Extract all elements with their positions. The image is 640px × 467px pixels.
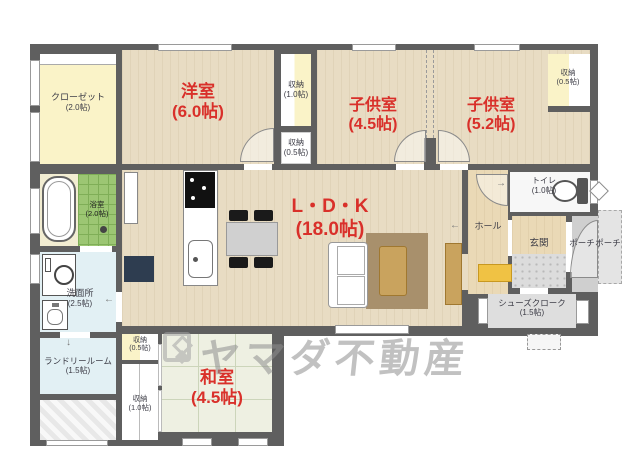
logo-diamond xyxy=(175,350,189,364)
kitchen-cupboard xyxy=(124,172,138,224)
room-kids-2-label: 子供室(5.2帖) xyxy=(429,96,553,134)
deck-area xyxy=(40,400,116,440)
sofa-cushion xyxy=(337,246,365,275)
window xyxy=(30,112,40,162)
room-toilet-label: トイレ(1.0帖) xyxy=(526,176,562,195)
laundry-door-gap xyxy=(60,332,90,338)
door-gap xyxy=(440,164,468,170)
washer-drum xyxy=(54,265,74,285)
window xyxy=(474,44,520,51)
room-storage-b-label: 収納(0.5帖) xyxy=(279,138,313,157)
room-laundry-label: ランドリールーム(1.5帖) xyxy=(34,356,122,376)
window xyxy=(158,44,232,51)
closet-door xyxy=(40,54,116,65)
window xyxy=(30,254,40,284)
vanity-basin xyxy=(47,309,63,325)
entry-arrow-icon: ← xyxy=(450,221,460,231)
faucet-dot xyxy=(193,257,198,262)
room-washroom-label: 洗面所(2.5帖) xyxy=(48,288,112,308)
outdoor-step xyxy=(527,334,561,350)
bathtub-inner xyxy=(47,181,71,237)
door-gap xyxy=(244,164,272,170)
tv-board xyxy=(445,243,462,305)
room-storage-a-label: 収納(1.0帖) xyxy=(279,80,313,99)
room-storage-e-label: 収納(1.0帖) xyxy=(120,394,160,412)
room-bath-label: 浴室(2.0帖) xyxy=(76,200,118,218)
room-west-label: 洋室(6.0帖) xyxy=(122,82,274,123)
room-storage-d-label: 収納(0.5帖) xyxy=(120,337,160,354)
entry-arrow-icon: → xyxy=(496,179,506,189)
window xyxy=(30,188,40,234)
window xyxy=(182,438,212,446)
entry-arrow-icon: ← xyxy=(104,295,114,305)
chair xyxy=(229,257,248,268)
shoe-cabinet-icon xyxy=(478,264,512,282)
room-closet-label: クローゼット(2.0帖) xyxy=(40,92,116,112)
room-shoes-closet-label: シューズクローク(1.5帖) xyxy=(486,298,578,318)
floor-plan: 洋室(6.0帖) 子供室(4.5帖) 子供室(5.2帖) L・D・K(18.0帖… xyxy=(0,0,640,467)
room-genkan-label: 玄関 xyxy=(512,238,566,249)
toilet-tank xyxy=(577,178,588,204)
watermark-text: ヤマダ不動産 xyxy=(197,326,473,384)
shoes-closet-opening xyxy=(520,288,548,294)
window xyxy=(46,440,108,446)
refrigerator-icon xyxy=(124,256,154,282)
sofa xyxy=(328,242,368,308)
room-storage-c-label: 収納(0.5帖) xyxy=(546,68,590,86)
entry-arrow-icon: ↓ xyxy=(66,338,71,348)
bath-door-gap xyxy=(80,246,112,252)
room-kids-1-label: 子供室(4.5帖) xyxy=(317,96,429,134)
bathtub-icon xyxy=(42,176,76,242)
ldk-hall-opening xyxy=(462,254,468,290)
window xyxy=(352,44,396,51)
cooktop-icon xyxy=(185,172,215,208)
burner xyxy=(191,196,195,200)
room-ldk-label: L・D・K(18.0帖) xyxy=(240,196,420,242)
window xyxy=(30,60,40,106)
porch-outer-label: ポーチ xyxy=(590,238,626,248)
burner xyxy=(190,178,194,182)
coffee-table xyxy=(379,246,407,296)
shower-icon xyxy=(100,226,107,233)
storage-c-wall xyxy=(548,106,590,112)
sofa-cushion xyxy=(337,276,365,305)
washroom-door-gap xyxy=(116,292,122,322)
washer-panel xyxy=(45,258,51,272)
room-hall-label: ホール xyxy=(466,221,510,232)
kitchen-sink-icon xyxy=(188,240,213,278)
chair xyxy=(254,257,273,268)
genkan-tataki xyxy=(512,254,566,288)
yamada-diamond-logo xyxy=(163,332,191,362)
door-gap xyxy=(396,164,424,170)
window xyxy=(238,438,268,446)
burner xyxy=(202,186,206,190)
